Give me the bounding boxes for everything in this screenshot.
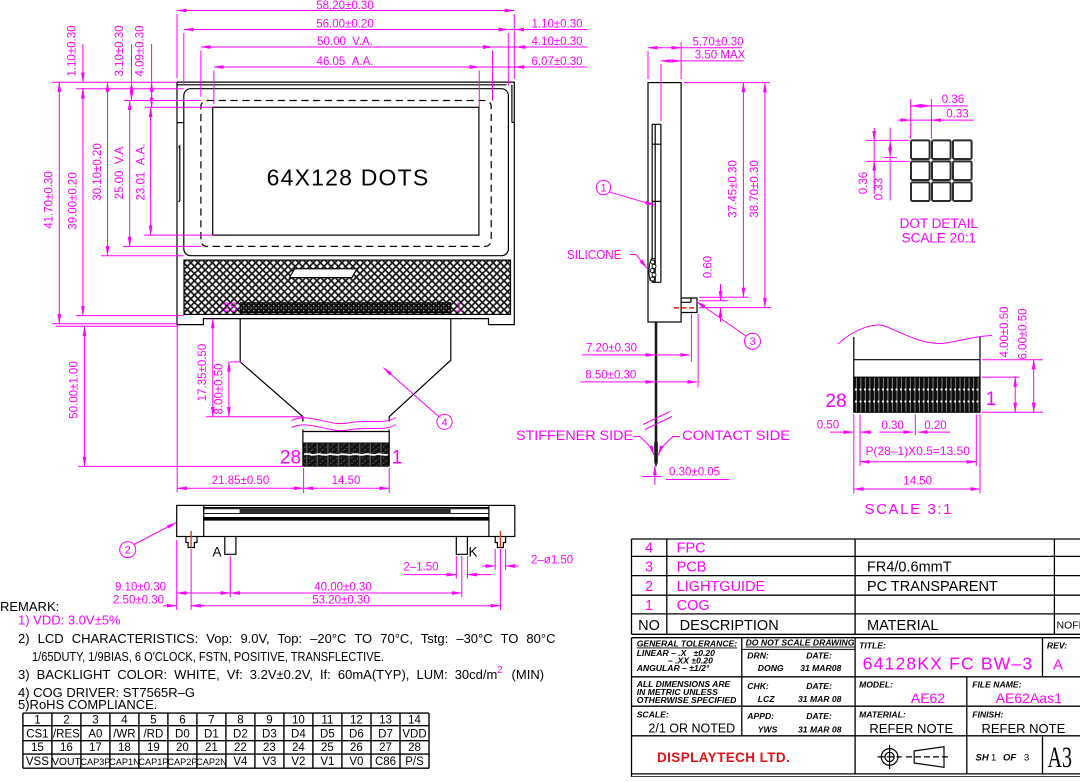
svg-text:3: 3 <box>645 560 653 576</box>
svg-text:OF: OF <box>1003 753 1016 764</box>
svg-text:12: 12 <box>350 714 363 726</box>
svg-text:0.20: 0.20 <box>924 420 946 432</box>
svg-text:41.70±0.30: 41.70±0.30 <box>44 171 56 228</box>
svg-text:2: 2 <box>645 579 653 595</box>
svg-text:14: 14 <box>408 714 421 726</box>
svg-text:APPD:: APPD: <box>746 711 774 721</box>
svg-text:FILE NAME:: FILE NAME: <box>972 680 1021 690</box>
svg-text:3) BACKLIGHT COLOR: WHITE,: 3) BACKLIGHT COLOR: WHITE, Vf: 3.2V±0.2V… <box>18 667 544 682</box>
svg-text:1.10±0.30: 1.10±0.30 <box>67 25 79 76</box>
svg-text:REFER NOTE: REFER NOTE <box>869 721 953 736</box>
svg-text:21.85±0.50: 21.85±0.50 <box>212 475 269 487</box>
svg-text:D6: D6 <box>349 728 364 740</box>
svg-text:6.00±0.50: 6.00±0.50 <box>1018 308 1030 359</box>
svg-text:VSS: VSS <box>26 756 49 768</box>
svg-text:DONG: DONG <box>758 663 784 673</box>
svg-text:2: 2 <box>125 545 131 557</box>
svg-text:16: 16 <box>60 742 73 754</box>
svg-text:4: 4 <box>645 540 653 556</box>
svg-text:FINISH:: FINISH: <box>972 710 1003 720</box>
svg-text:P/S: P/S <box>405 756 424 768</box>
svg-text:15: 15 <box>31 742 44 754</box>
svg-text:11: 11 <box>321 714 333 726</box>
svg-text:17.35±0.50: 17.35±0.50 <box>197 344 209 401</box>
svg-text:V3: V3 <box>262 756 276 768</box>
svg-text:8: 8 <box>237 714 243 726</box>
svg-text:DRN:: DRN: <box>747 650 769 660</box>
svg-text:3.10±0.30: 3.10±0.30 <box>114 25 126 76</box>
svg-text:FR4/0.6mmT: FR4/0.6mmT <box>867 560 952 576</box>
svg-text:SCALE 20:1: SCALE 20:1 <box>902 231 976 246</box>
svg-text:SH: SH <box>976 753 990 764</box>
svg-text:8.00±0.50: 8.00±0.50 <box>214 363 226 414</box>
svg-text:MODEL:: MODEL: <box>859 680 893 690</box>
svg-text:13: 13 <box>379 714 392 726</box>
svg-text:3: 3 <box>92 714 98 726</box>
svg-text:2: 2 <box>63 714 69 726</box>
svg-text:NO: NO <box>638 618 660 634</box>
svg-text:VDD: VDD <box>402 728 426 740</box>
svg-text:38.70±0.30: 38.70±0.30 <box>749 160 761 217</box>
svg-text:DATE:: DATE: <box>806 681 832 691</box>
svg-text:1) VDD: 3.0V±5%: 1) VDD: 3.0V±5% <box>18 613 121 628</box>
svg-text:3.50 MAX: 3.50 MAX <box>695 50 746 62</box>
svg-text:A0: A0 <box>88 728 102 740</box>
svg-text:TITLE:: TITLE: <box>859 641 886 651</box>
svg-text:46.05 A.A.: 46.05 A.A. <box>317 56 374 68</box>
svg-text:SCALE:: SCALE: <box>637 710 669 720</box>
svg-text:CHK:: CHK: <box>747 681 769 691</box>
svg-text:AE62Aas1: AE62Aas1 <box>996 690 1062 706</box>
svg-text:LCZ: LCZ <box>758 694 775 704</box>
svg-text:A: A <box>1053 657 1063 674</box>
svg-text:4.09±0.30: 4.09±0.30 <box>135 25 147 76</box>
svg-text:28: 28 <box>280 448 301 469</box>
svg-text:P(28–1)X0.5=13.50: P(28–1)X0.5=13.50 <box>865 444 970 458</box>
svg-text:1: 1 <box>986 389 997 410</box>
svg-text:64128KX FC BW–3: 64128KX FC BW–3 <box>863 654 1034 674</box>
svg-text:5.70±0.30: 5.70±0.30 <box>692 36 743 48</box>
svg-text:58.20±0.30: 58.20±0.30 <box>316 0 373 12</box>
svg-text:9.10±0.30: 9.10±0.30 <box>115 582 166 594</box>
svg-text:0.30: 0.30 <box>881 420 903 432</box>
svg-text:DO NOT SCALE DRAWING: DO NOT SCALE DRAWING <box>746 638 855 648</box>
svg-text:OTHERWISE SPECIFIED: OTHERWISE SPECIFIED <box>637 695 737 705</box>
svg-text:/WR: /WR <box>113 728 135 740</box>
svg-text:1.10±0.30: 1.10±0.30 <box>531 18 582 30</box>
svg-text:28: 28 <box>825 391 846 412</box>
svg-text:2: 2 <box>497 665 503 676</box>
svg-text:D2: D2 <box>233 728 248 740</box>
svg-text:19: 19 <box>147 742 160 754</box>
svg-text:27: 27 <box>379 742 392 754</box>
svg-text:64X128 DOTS: 64X128 DOTS <box>267 165 430 191</box>
svg-text:0.36: 0.36 <box>858 172 870 194</box>
svg-text:1: 1 <box>34 714 40 726</box>
svg-text:1: 1 <box>456 301 463 315</box>
svg-text:0.33: 0.33 <box>946 109 968 121</box>
svg-text:3: 3 <box>1024 753 1029 764</box>
svg-text:REV:: REV: <box>1047 641 1067 651</box>
svg-text:C86: C86 <box>375 756 396 768</box>
svg-text:ANGULAR – ±1/2°: ANGULAR – ±1/2° <box>636 663 710 673</box>
svg-text:21: 21 <box>205 742 218 754</box>
svg-text:39.00±0.20: 39.00±0.20 <box>67 172 79 229</box>
svg-text:CAP2P: CAP2P <box>167 757 197 767</box>
svg-text:0.50: 0.50 <box>817 420 839 432</box>
svg-text:20: 20 <box>176 742 189 754</box>
svg-text:2/1 OR NOTED: 2/1 OR NOTED <box>648 722 735 736</box>
svg-text:YWS: YWS <box>758 725 778 735</box>
svg-text:22: 22 <box>234 742 247 754</box>
svg-text:18: 18 <box>118 742 131 754</box>
svg-text:CS1: CS1 <box>26 728 48 740</box>
svg-text:D3: D3 <box>262 728 277 740</box>
svg-text:AE62: AE62 <box>911 690 945 706</box>
svg-text:1: 1 <box>991 753 996 764</box>
svg-text:31 MAR08: 31 MAR08 <box>800 663 841 673</box>
svg-text:10: 10 <box>292 714 305 726</box>
svg-text:25: 25 <box>321 742 334 754</box>
svg-text:SILICONE: SILICONE <box>567 247 622 262</box>
svg-text:17: 17 <box>89 742 102 754</box>
svg-text:CAP2N: CAP2N <box>196 757 227 767</box>
svg-text:D7: D7 <box>378 728 393 740</box>
svg-text:V0: V0 <box>349 756 363 768</box>
svg-text:1/65DUTY, 1/9BIAS, 6 O′CLOC: 1/65DUTY, 1/9BIAS, 6 O′CLOCK, FSTN, POSI… <box>32 650 384 664</box>
svg-text:/RES: /RES <box>53 728 80 740</box>
svg-text:23: 23 <box>263 742 276 754</box>
svg-text:REFER NOTE: REFER NOTE <box>982 721 1066 736</box>
svg-text:2.50±0.30: 2.50±0.30 <box>113 595 164 607</box>
svg-text:14.50: 14.50 <box>903 476 932 488</box>
svg-text:SCALE 3:1: SCALE 3:1 <box>864 501 953 518</box>
svg-text:6.07±0.30: 6.07±0.30 <box>531 56 582 68</box>
svg-text:0.36: 0.36 <box>942 94 964 106</box>
svg-text:0.30±0.05: 0.30±0.05 <box>669 467 720 479</box>
svg-text:9: 9 <box>266 714 272 726</box>
svg-text:28: 28 <box>408 742 421 754</box>
svg-text:MATERIAL: MATERIAL <box>867 618 938 634</box>
svg-text:1: 1 <box>392 448 403 469</box>
svg-text:PC TRANSPARENT: PC TRANSPARENT <box>867 579 998 595</box>
svg-text:LIGHTGUIDE: LIGHTGUIDE <box>677 579 766 595</box>
svg-text:DESCRIPTION: DESCRIPTION <box>680 618 779 634</box>
svg-text:56.00±0.20: 56.00±0.20 <box>316 19 373 31</box>
svg-text:30.10±0.20: 30.10±0.20 <box>92 143 104 200</box>
svg-text:40.00±0.30: 40.00±0.30 <box>314 582 371 594</box>
svg-text:D1: D1 <box>204 728 219 740</box>
svg-text:NOFF: NOFF <box>1057 619 1080 631</box>
svg-text:D0: D0 <box>175 728 190 740</box>
svg-text:1: 1 <box>600 183 606 195</box>
svg-text:4: 4 <box>441 417 447 429</box>
svg-text:CAP1P: CAP1P <box>138 757 168 767</box>
svg-text:FPC: FPC <box>677 540 706 556</box>
svg-text:25.00 V.A: 25.00 V.A <box>114 146 126 199</box>
svg-text:2–1.50: 2–1.50 <box>403 562 438 574</box>
svg-text:50.00±1.00: 50.00±1.00 <box>68 361 80 418</box>
svg-text:26: 26 <box>350 742 363 754</box>
svg-text:COG: COG <box>677 598 710 614</box>
svg-text:31 MAR 08: 31 MAR 08 <box>798 694 842 704</box>
svg-text:A: A <box>213 545 222 560</box>
svg-text:50.00 V.A.: 50.00 V.A. <box>317 36 373 48</box>
svg-text:DOT DETAIL: DOT DETAIL <box>900 216 979 231</box>
svg-text:24: 24 <box>292 742 305 754</box>
svg-text:DATE:: DATE: <box>806 650 832 660</box>
svg-text:V2: V2 <box>291 756 305 768</box>
svg-text:7: 7 <box>208 714 214 726</box>
svg-text:STIFFENER SIDE: STIFFENER SIDE <box>516 428 633 443</box>
svg-text:8.50±0.30: 8.50±0.30 <box>585 370 636 382</box>
svg-text:2–ø1.50: 2–ø1.50 <box>531 555 573 567</box>
svg-text:37.45±0.30: 37.45±0.30 <box>728 160 740 217</box>
svg-text:4: 4 <box>121 714 128 726</box>
svg-text:V4: V4 <box>233 756 248 768</box>
svg-text:PCB: PCB <box>677 560 707 576</box>
svg-text:31 MAR 08: 31 MAR 08 <box>798 725 842 735</box>
svg-text:4.10±0.30: 4.10±0.30 <box>531 36 582 48</box>
svg-text:4.00±0.50: 4.00±0.50 <box>999 306 1011 357</box>
svg-text:3: 3 <box>749 336 755 348</box>
svg-text:14.50: 14.50 <box>332 475 361 487</box>
svg-text:K: K <box>469 545 478 560</box>
svg-text:CAP1N: CAP1N <box>109 757 140 767</box>
svg-text:7.20±0.30: 7.20±0.30 <box>586 343 637 355</box>
svg-text:1: 1 <box>645 598 653 614</box>
svg-text:CONTACT SIDE: CONTACT SIDE <box>682 428 790 443</box>
svg-text:53.20±0.30: 53.20±0.30 <box>312 595 369 607</box>
svg-text:0.60: 0.60 <box>703 256 715 278</box>
svg-text:V1: V1 <box>320 756 334 768</box>
svg-text:6: 6 <box>179 714 185 726</box>
svg-text:MATERIAL:: MATERIAL: <box>859 710 906 720</box>
svg-text:28: 28 <box>223 301 237 315</box>
svg-text:VOUT: VOUT <box>52 757 82 768</box>
svg-text:A3: A3 <box>1048 741 1073 774</box>
svg-text:/RD: /RD <box>143 728 163 740</box>
svg-text:5)RoHS COMPLIANCE.: 5)RoHS COMPLIANCE. <box>18 697 157 712</box>
svg-text:2) LCD CHARACTERISTICS: Vop: 2) LCD CHARACTERISTICS: Vop: 9.0V, Top: … <box>18 631 555 646</box>
svg-text:5: 5 <box>150 714 156 726</box>
svg-text:DISPLAYTECH LTD.: DISPLAYTECH LTD. <box>657 750 790 765</box>
svg-text:D4: D4 <box>291 728 306 740</box>
svg-text:D5: D5 <box>320 728 335 740</box>
svg-text:0.33: 0.33 <box>873 178 885 200</box>
svg-text:DATE:: DATE: <box>806 711 832 721</box>
svg-text:CAP3P: CAP3P <box>80 757 110 767</box>
svg-text:23.01 A.A.: 23.01 A.A. <box>135 144 147 201</box>
